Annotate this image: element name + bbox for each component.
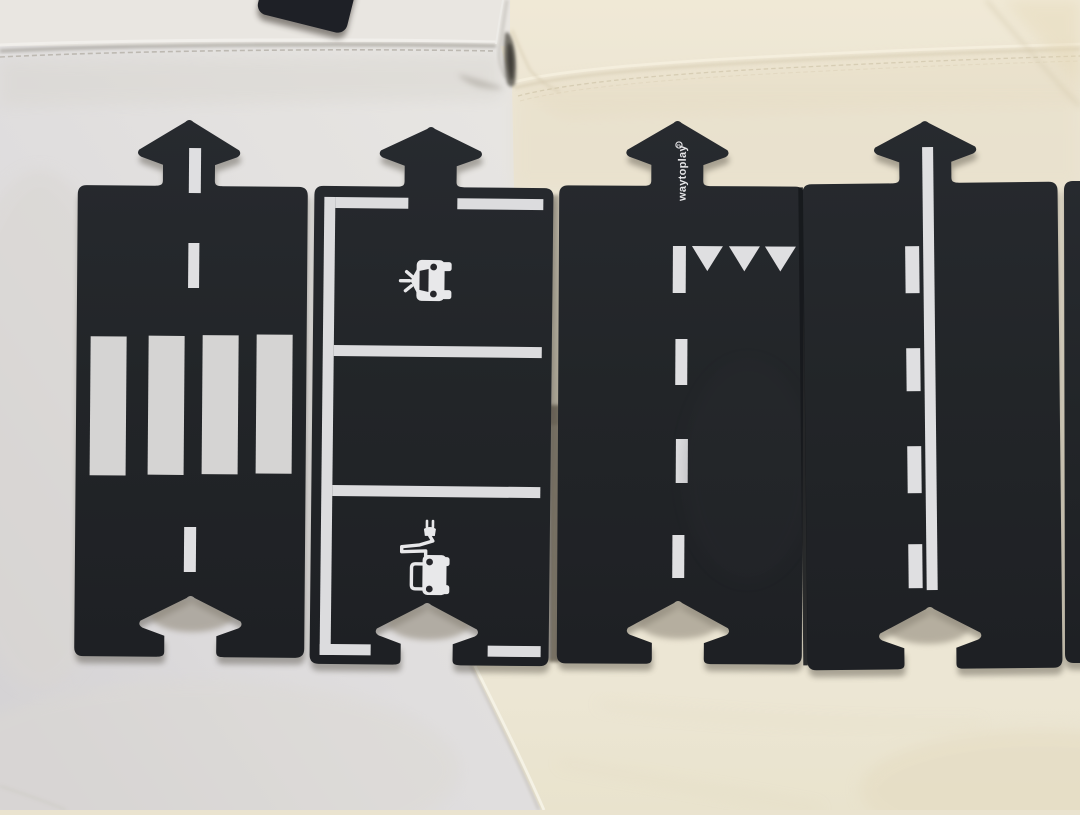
svg-text:waytoplay: waytoplay <box>677 145 689 203</box>
